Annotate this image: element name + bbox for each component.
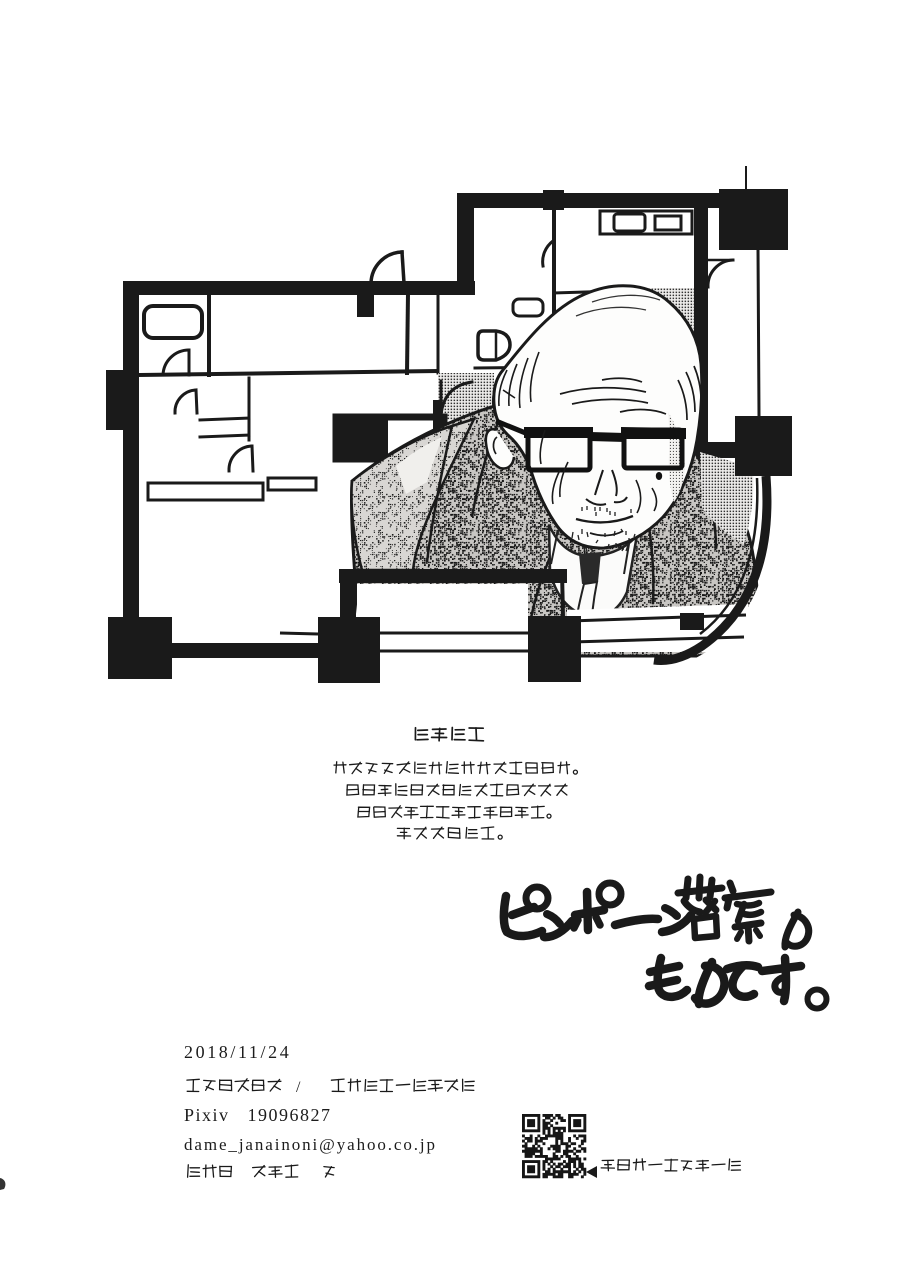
svg-text:dame_janainoni@yahoo.co.jp: dame_janainoni@yahoo.co.jp (184, 1135, 437, 1154)
svg-text:/: / (296, 1079, 301, 1096)
svg-text:2018/11/24: 2018/11/24 (184, 1042, 291, 1062)
svg-text:Pixiv 19096827: Pixiv 19096827 (184, 1105, 332, 1125)
